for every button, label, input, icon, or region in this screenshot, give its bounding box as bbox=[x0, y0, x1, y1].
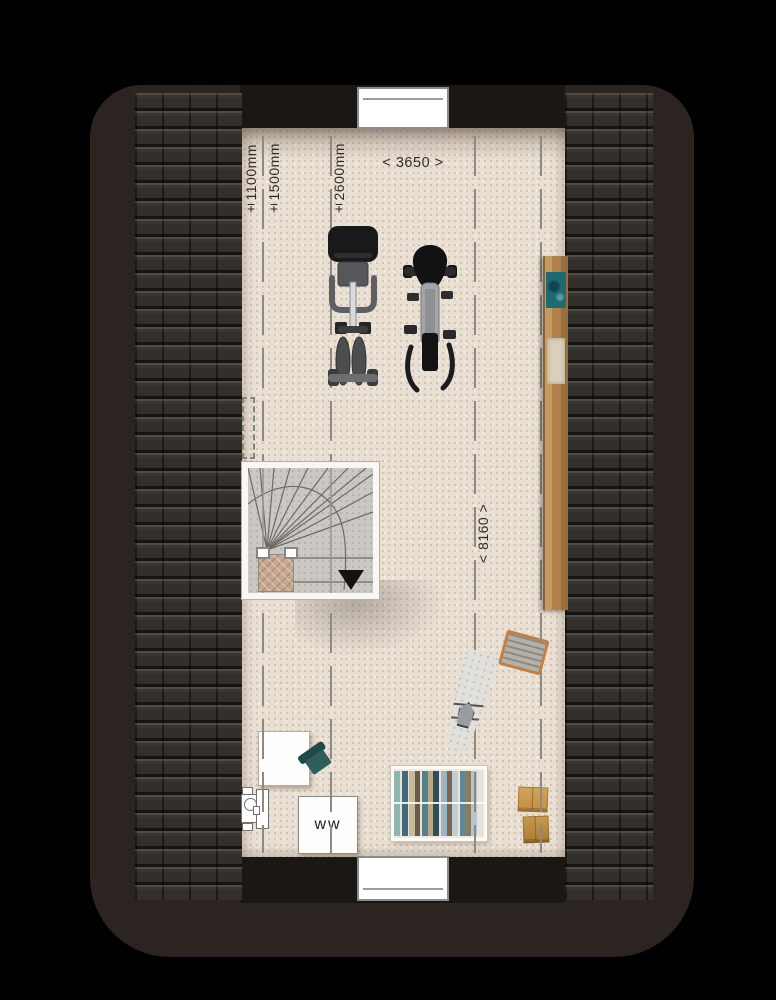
dimension-label-2600: ±2600mm bbox=[331, 129, 349, 217]
dimension-label-1500: ±1500mm bbox=[266, 129, 284, 217]
storage-box bbox=[518, 786, 549, 812]
laundry-basket bbox=[498, 629, 550, 675]
box-fold-line bbox=[534, 816, 536, 840]
exercise-bike bbox=[328, 226, 378, 396]
dimension-label-length: < 8160 > bbox=[475, 473, 493, 563]
wooden-shelf-board bbox=[543, 256, 568, 610]
floor-plan-canvas: ±1100mm ±1500mm ±2600mm < 3650 > < 8160 … bbox=[0, 0, 776, 1000]
fixture-handle bbox=[253, 806, 260, 815]
utility-fixture bbox=[240, 786, 270, 832]
winder-staircase bbox=[242, 462, 379, 599]
headroom-line-1500-right bbox=[540, 136, 542, 853]
dormer-window-top bbox=[357, 87, 449, 129]
hot-water-unit-label: ww bbox=[314, 816, 341, 834]
fixture-tab bbox=[242, 823, 253, 831]
window-glass-line bbox=[363, 888, 443, 890]
stair-direction-arrow bbox=[338, 570, 364, 590]
roof-tiles-left bbox=[135, 93, 242, 900]
dimension-label-width: < 3650 > bbox=[377, 155, 449, 171]
roof-tiles-right bbox=[565, 93, 653, 900]
window-glass-line bbox=[363, 98, 443, 100]
dashed-outline-object bbox=[242, 397, 255, 459]
stair-landing-wood bbox=[258, 554, 294, 592]
box-fold-line bbox=[531, 787, 533, 809]
hot-water-unit: ww bbox=[298, 796, 358, 854]
clothes-rail bbox=[394, 802, 484, 804]
folded-textile-beige bbox=[547, 338, 565, 384]
dimension-label-1100: ±1100mm bbox=[243, 129, 261, 217]
storage-box bbox=[523, 816, 550, 844]
stair-newel-post bbox=[256, 547, 270, 559]
dormer-window-bottom bbox=[357, 856, 449, 901]
clothes-rack bbox=[391, 766, 487, 841]
folded-textile-teal bbox=[546, 272, 566, 308]
spin-bike bbox=[403, 243, 457, 393]
stair-newel-post bbox=[284, 547, 298, 559]
